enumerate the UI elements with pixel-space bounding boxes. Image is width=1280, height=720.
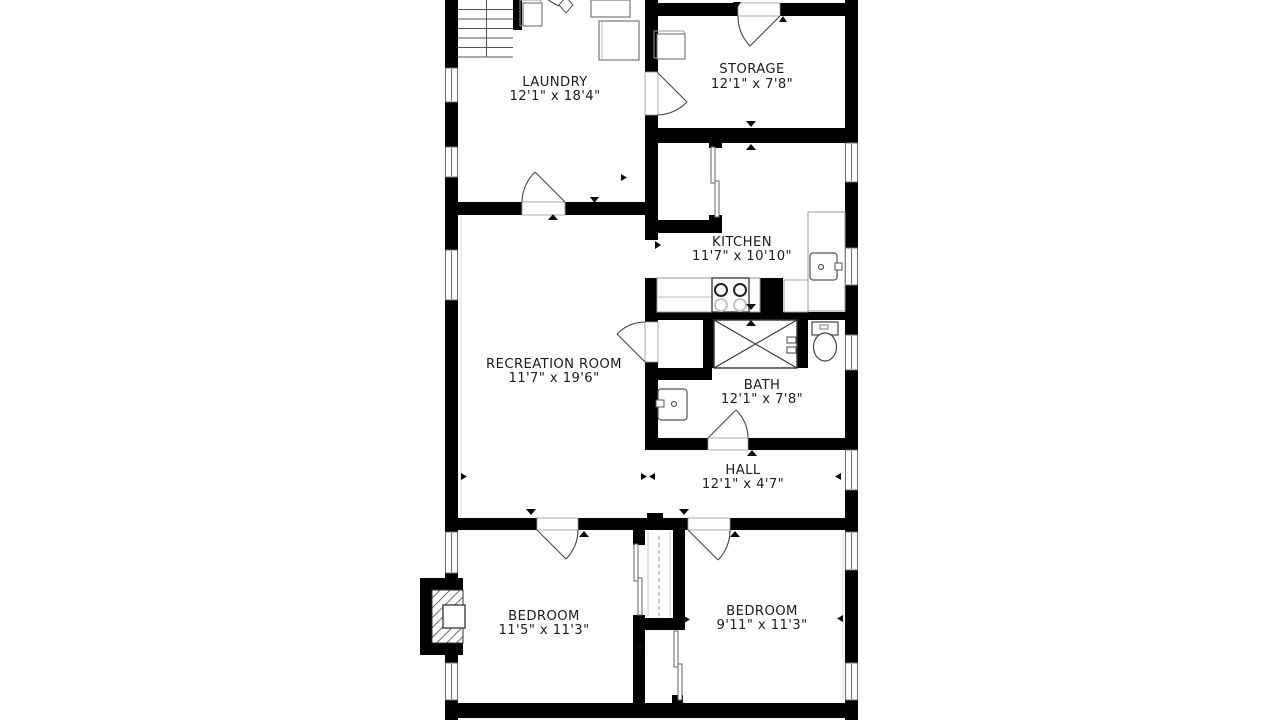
dryer-icon (599, 21, 639, 60)
bathtub-icon (714, 320, 797, 368)
bath-sink-icon (656, 389, 687, 420)
cabinet-icon (591, 0, 630, 17)
floor-plan: LAUNDRY 12'1" x 18'4" STORAGE 12'1" x 7'… (0, 0, 1280, 720)
room-dims-laundry: 12'1" x 18'4" (509, 89, 600, 104)
window (446, 532, 458, 573)
room-dims-storage: 12'1" x 7'8" (711, 77, 793, 92)
stove-icon (712, 278, 749, 312)
toilet-icon (812, 322, 838, 361)
room-dims-recreation: 11'7" x 19'6" (508, 371, 599, 386)
room-label-bedroom-right: BEDROOM (726, 604, 798, 619)
room-label-kitchen: KITCHEN (712, 235, 772, 250)
window (846, 248, 858, 285)
room-dims-bedroom-right: 9'11" x 11'3" (716, 618, 807, 633)
room-label-hall: HALL (725, 463, 760, 478)
counter (784, 280, 808, 312)
room-label-bedroom-left: BEDROOM (508, 609, 580, 624)
window (446, 663, 458, 700)
water-heater-icon (654, 31, 685, 59)
window (846, 663, 858, 700)
window (446, 68, 458, 102)
room-dims-hall: 12'1" x 4'7" (702, 477, 784, 492)
kitchen-sink-icon (810, 253, 842, 280)
counter (657, 278, 712, 312)
floor-plan-page: LAUNDRY 12'1" x 18'4" STORAGE 12'1" x 7'… (0, 0, 1280, 720)
window (446, 147, 458, 177)
window (846, 335, 858, 370)
window (846, 450, 858, 490)
room-label-bath: BATH (744, 378, 781, 393)
window (846, 143, 858, 182)
room-label-laundry: LAUNDRY (522, 75, 588, 90)
room-dims-bedroom-left: 11'5" x 11'3" (498, 623, 589, 638)
window (446, 250, 458, 300)
room-dims-bath: 12'1" x 7'8" (721, 392, 803, 407)
fireplace-icon (420, 578, 465, 655)
room-dims-kitchen: 11'7" x 10'10" (692, 249, 792, 264)
window (846, 532, 858, 570)
room-label-storage: STORAGE (719, 62, 785, 77)
room-label-recreation: RECREATION ROOM (486, 357, 622, 372)
washer-icon (520, 0, 542, 26)
